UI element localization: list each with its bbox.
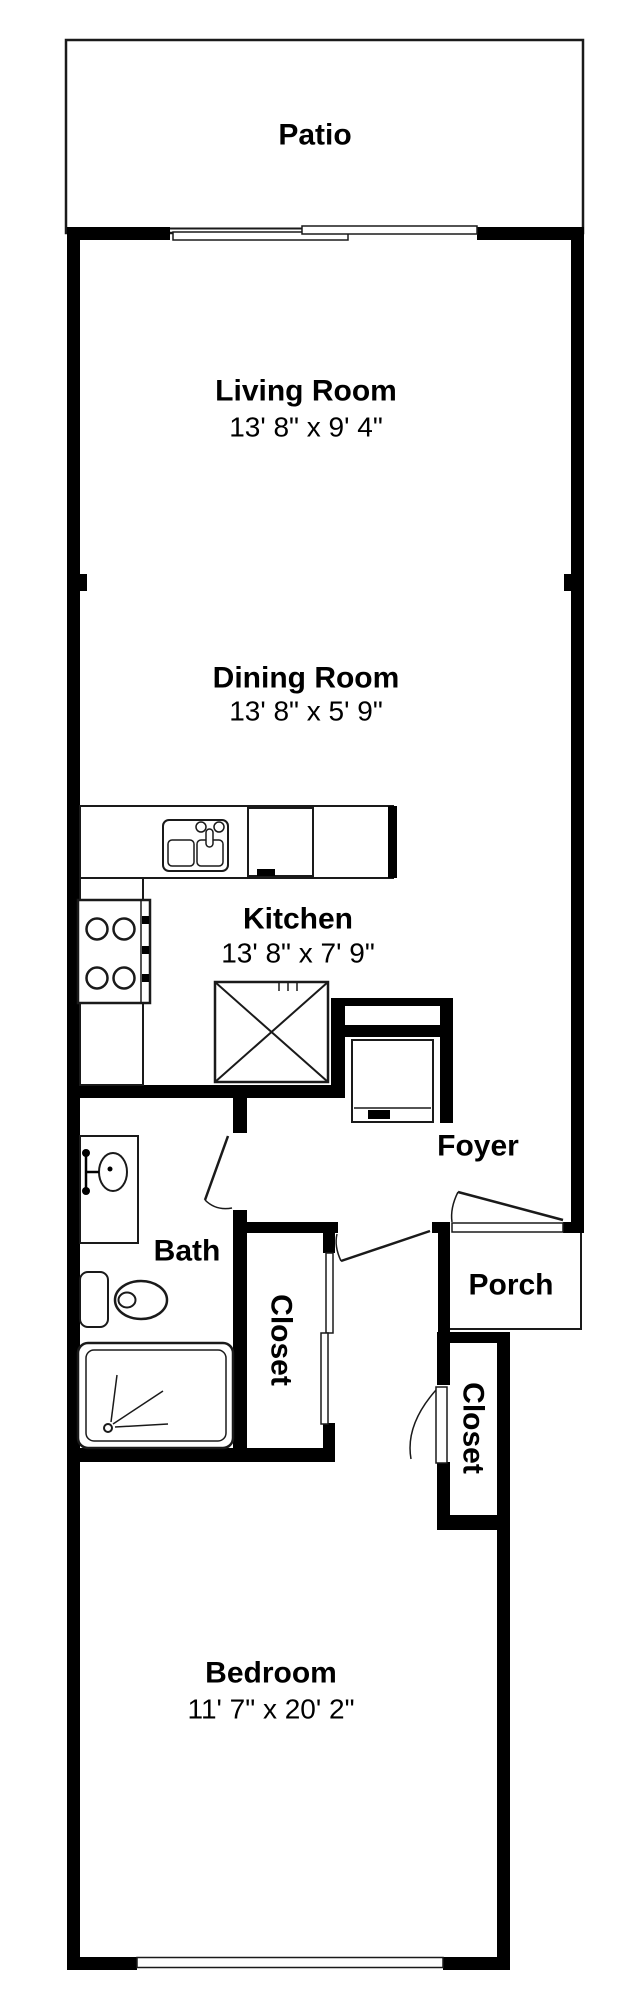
foyer-bottom-jamb	[432, 1222, 450, 1233]
stove	[78, 900, 150, 1003]
vanity-basin	[99, 1153, 127, 1191]
utility-closet-wall-left	[331, 998, 345, 1098]
wall-tab-right	[564, 574, 571, 591]
washer-outline	[352, 1040, 433, 1122]
refrigerator	[215, 982, 328, 1082]
washer-vent	[368, 1110, 390, 1119]
utility-closet-wall-top	[345, 998, 440, 1006]
burner-4	[114, 968, 135, 989]
kitchen-dimensions: 13' 8" x 7' 9"	[221, 938, 375, 969]
faucet-spout	[206, 829, 213, 847]
wall-bottom-left-segment	[67, 1957, 137, 1970]
kitchen-sink	[163, 820, 228, 871]
bedroom-closet-wall-left-upper	[437, 1332, 450, 1385]
vanity-drain	[108, 1167, 113, 1172]
hall-closet-jamb-bottom	[323, 1423, 335, 1462]
bath-label: Bath	[154, 1235, 221, 1268]
burner-3	[87, 968, 108, 989]
wall-left	[67, 227, 80, 1970]
hall-closet-panel-1	[326, 1253, 333, 1333]
shower	[78, 1343, 233, 1448]
washer	[352, 1040, 433, 1122]
stove-knob-1	[142, 916, 149, 924]
burner-1	[87, 919, 108, 940]
bath-wall-upper-stub	[233, 1098, 247, 1133]
bedroom-dimensions: 11' 7" x 20' 2"	[187, 1694, 354, 1725]
porch-left-wall	[438, 1233, 450, 1343]
kitchen-counter	[80, 806, 393, 878]
dishwasher	[248, 808, 313, 876]
dishwasher-handle	[257, 869, 275, 876]
bedroom-label: Bedroom	[205, 1657, 337, 1690]
wall-right-lower	[497, 1332, 510, 1970]
living-room-dimensions: 13' 8" x 9' 4"	[229, 412, 383, 443]
hall-closet-label: Closet	[265, 1294, 298, 1386]
slider-panel-right	[302, 226, 477, 234]
entry-threshold	[452, 1223, 563, 1232]
wall-right-upper	[571, 227, 584, 1233]
living-room-label: Living Room	[215, 375, 397, 408]
dishwasher-outline	[248, 808, 313, 876]
wall-tab-left	[80, 574, 87, 591]
stove-knob-2	[142, 946, 149, 954]
hall-closet-jamb-top	[323, 1222, 335, 1253]
floor-plan-drawing: Patio Living Room 13' 8" x 9' 4" Dining …	[0, 0, 634, 2000]
kitchen-bottom-wall	[67, 1085, 345, 1098]
bath-closet-wall	[233, 1210, 247, 1462]
shower-drain	[104, 1424, 112, 1432]
stove-outline	[78, 900, 150, 1003]
patio-label: Patio	[278, 119, 351, 152]
bath-bottom-wall	[67, 1448, 335, 1462]
toilet-hinge	[119, 1293, 136, 1308]
bedroom-window	[137, 1958, 443, 1968]
hall-closet-panel-2	[321, 1333, 328, 1424]
dining-room-label: Dining Room	[213, 662, 400, 695]
vanity-sink	[80, 1136, 138, 1243]
wall-top-right-segment	[477, 227, 584, 240]
dining-room-dimensions: 13' 8" x 5' 9"	[229, 696, 383, 727]
bedroom-closet-wall-bottom	[437, 1515, 510, 1530]
faucet-handle-right	[214, 822, 224, 832]
utility-closet-crossbar	[345, 1025, 453, 1037]
floor-plan: Patio Living Room 13' 8" x 9' 4" Dining …	[0, 0, 634, 2000]
faucet-handle-left	[196, 822, 206, 832]
toilet-tank	[80, 1272, 108, 1327]
foyer-bottom-wall-left	[233, 1222, 338, 1233]
sink-basin-left	[168, 840, 194, 866]
wall-bottom-right-segment	[443, 1957, 510, 1970]
bedroom-closet-door-leaf	[436, 1387, 447, 1463]
bedroom-closet-label: Closet	[457, 1382, 490, 1474]
counter-end-cap	[388, 806, 397, 878]
wall-top-left-segment	[67, 227, 170, 240]
porch-label: Porch	[468, 1269, 553, 1302]
foyer-label: Foyer	[437, 1130, 519, 1163]
burner-2	[114, 919, 135, 940]
stove-knob-3	[142, 974, 149, 982]
utility-closet-wall-right	[440, 998, 453, 1123]
kitchen-label: Kitchen	[243, 903, 353, 936]
foyer-bottom-corner	[563, 1222, 584, 1233]
